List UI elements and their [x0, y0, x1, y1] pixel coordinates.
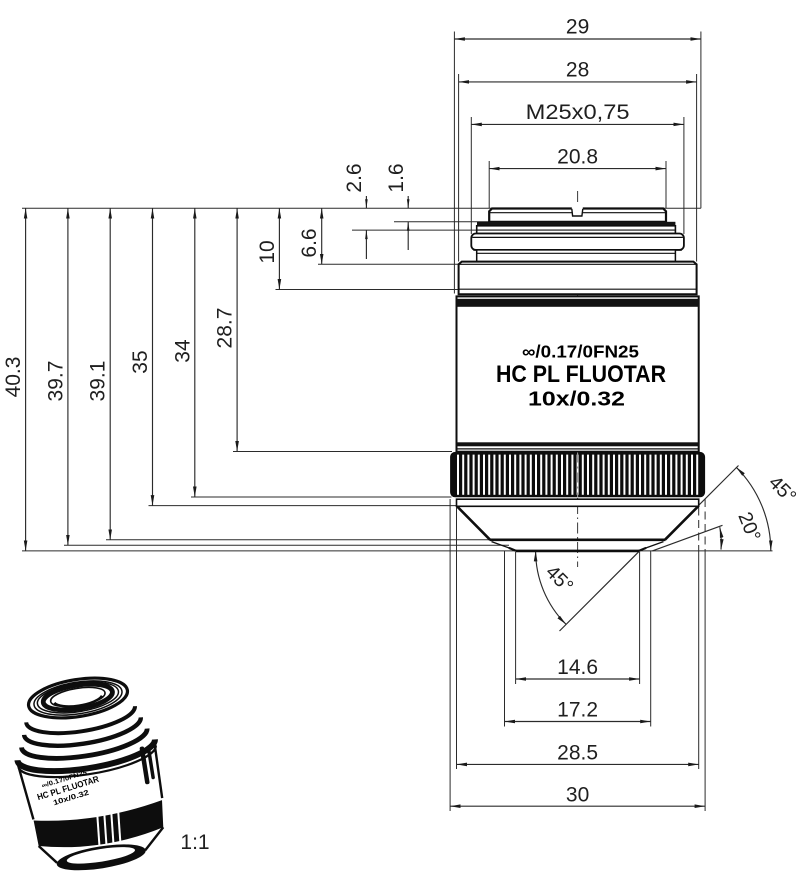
svg-text:39.7: 39.7 [44, 361, 67, 402]
svg-text:29: 29 [566, 16, 589, 39]
svg-text:39.1: 39.1 [87, 361, 110, 402]
svg-text:28: 28 [566, 59, 589, 82]
svg-text:10: 10 [256, 240, 279, 263]
svg-text:28.7: 28.7 [214, 308, 237, 349]
svg-text:∞/0.17/0FN25: ∞/0.17/0FN25 [522, 342, 639, 362]
svg-text:M25x0,75: M25x0,75 [526, 101, 630, 124]
svg-text:35: 35 [129, 350, 152, 373]
svg-text:6.6: 6.6 [298, 228, 321, 257]
svg-text:28.5: 28.5 [557, 742, 598, 765]
svg-text:45°: 45° [541, 561, 577, 597]
svg-text:30: 30 [566, 784, 589, 807]
svg-text:1:1: 1:1 [180, 831, 209, 854]
svg-text:HC PL FLUOTAR: HC PL FLUOTAR [496, 361, 666, 388]
svg-text:10x/0.32: 10x/0.32 [528, 388, 625, 411]
svg-text:2.6: 2.6 [343, 163, 366, 192]
svg-text:34: 34 [171, 339, 194, 363]
svg-text:17.2: 17.2 [557, 699, 598, 722]
svg-text:1.6: 1.6 [385, 163, 408, 192]
svg-text:14.6: 14.6 [557, 656, 598, 679]
svg-text:40.3: 40.3 [2, 357, 25, 398]
svg-text:20.8: 20.8 [557, 146, 598, 169]
svg-text:20°: 20° [733, 509, 764, 545]
svg-text:45°: 45° [764, 472, 800, 508]
